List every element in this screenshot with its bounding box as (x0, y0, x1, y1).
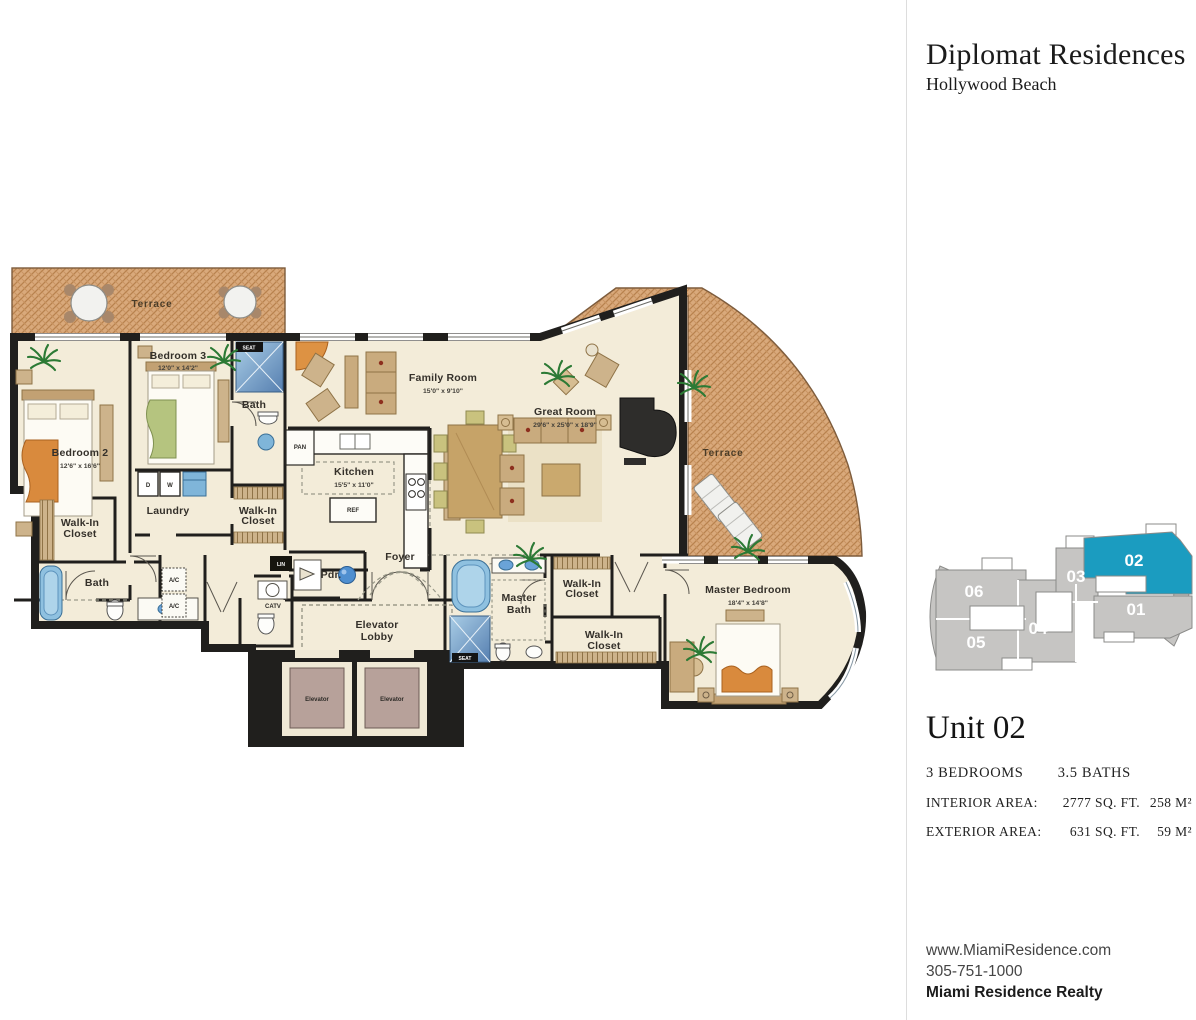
terrace-top: Terrace (12, 268, 285, 337)
exterior-area-label: EXTERIOR AREA: (926, 824, 1044, 840)
great-room-dims: 29'6" x 25'0" x 18'9" (533, 422, 597, 429)
floorplan-sheet: Terrace Terrace (0, 0, 1196, 1020)
terrace-right-label: Terrace (703, 448, 744, 459)
bath2-label: Bath (85, 577, 109, 589)
wic-m2-label2: Closet (587, 640, 621, 652)
ac2-label: A/C (169, 604, 180, 610)
lobby-label2: Lobby (361, 631, 394, 643)
building-subtitle: Hollywood Beach (926, 74, 1186, 95)
keyplan-tab (1104, 632, 1134, 642)
elevator1-label: Elevator (305, 697, 329, 703)
interior-area-label: INTERIOR AREA: (926, 795, 1044, 811)
wic-m1-label2: Closet (565, 588, 599, 600)
laundry-label: Laundry (147, 505, 190, 517)
realtor-footer: www.MiamiResidence.com 305-751-1000 Miam… (926, 940, 1111, 1003)
floorplan-drawing: Terrace Terrace (0, 250, 900, 770)
wic-bed3-label2: Closet (241, 515, 275, 527)
keyplan-label-02: 02 (1125, 551, 1144, 570)
wic-m1-rods (554, 557, 610, 569)
keyplan-label-01: 01 (1127, 600, 1146, 619)
keyplan-tab (982, 558, 1012, 570)
bedroom2-dims: 12'6" x 16'6" (60, 463, 100, 470)
exterior-area-sqft: 631 SQ. FT. (1044, 824, 1140, 840)
laundry-appliances: D W (138, 472, 206, 496)
seat-tag: SEAT (243, 346, 256, 352)
master-seat-tag: SEAT (459, 656, 472, 662)
wic-bed2-rods (40, 500, 54, 560)
great-room-label: Great Room (534, 406, 596, 418)
exterior-area-m2: 59 M² (1140, 824, 1192, 840)
dryer-label: D (146, 483, 151, 489)
bedroom3-dims: 12'0" x 14'2" (158, 365, 198, 372)
catv-label: CATV (265, 604, 281, 610)
interior-area-row: INTERIOR AREA: 2777 SQ. FT. 258 M² (926, 795, 1192, 811)
master-bedroom-label: Master Bedroom (705, 584, 791, 596)
master-bath-label1: Master (501, 592, 536, 604)
bath3-label: Bath (242, 399, 266, 411)
bedroom2-label: Bedroom 2 (52, 447, 109, 459)
bedroom3-label: Bedroom 3 (150, 350, 207, 362)
terrace-top-label: Terrace (132, 299, 173, 310)
wic-bed2-label2: Closet (63, 528, 97, 540)
linen-label: LIN (277, 562, 285, 568)
washer-label: W (167, 483, 173, 489)
baths-count: 3.5 BATHS (1058, 765, 1131, 781)
company-name: Miami Residence Realty (926, 982, 1111, 1003)
keyplan-core-cutout (1096, 576, 1146, 592)
exterior-area-row: EXTERIOR AREA: 631 SQ. FT. 59 M² (926, 824, 1192, 840)
building-title: Diplomat Residences (926, 38, 1186, 72)
beds-baths-row: 3 BEDROOMS 3.5 BATHS (926, 765, 1192, 782)
interior-area-m2: 258 M² (1140, 795, 1192, 811)
wic-m2-rods (556, 652, 656, 663)
master-bedroom-dims: 18'4" x 14'8" (728, 600, 768, 607)
foyer-label: Foyer (385, 551, 415, 563)
kitchen-label: Kitchen (334, 466, 374, 478)
family-room-dims: 15'0" x 9'10" (423, 388, 463, 395)
keyplan-core-cutout (970, 606, 1024, 630)
pantry-label: PAN (294, 445, 306, 451)
fridge-label: REF (347, 508, 359, 514)
phone-number: 305-751-1000 (926, 961, 1111, 982)
master-bath-label2: Bath (507, 604, 531, 616)
brand-header: Diplomat Residences Hollywood Beach (926, 38, 1186, 95)
family-room-label: Family Room (409, 372, 477, 384)
keyplan-label-04: 04 (1029, 619, 1048, 638)
interior-area-sqft: 2777 SQ. FT. (1044, 795, 1140, 811)
elevator-core: Elevator Elevator (252, 650, 458, 743)
pdr-label: Pdr. (321, 569, 342, 581)
website-url: www.MiamiResidence.com (926, 940, 1111, 961)
lobby-label1: Elevator (355, 619, 398, 631)
unit-info: Unit 02 3 BEDROOMS 3.5 BATHS INTERIOR AR… (926, 710, 1192, 840)
keyplan-label-06: 06 (965, 582, 984, 601)
keyplan-label-05: 05 (967, 633, 986, 652)
ac1-label: A/C (169, 578, 180, 584)
unit-title: Unit 02 (926, 710, 1192, 747)
keyplan-label-03: 03 (1067, 567, 1086, 586)
elevator2-label: Elevator (380, 697, 404, 703)
panel-divider (906, 0, 907, 1020)
kitchen-dims: 15'5" x 11'0" (334, 482, 374, 489)
building-keyplan: 06 05 04 03 02 01 (918, 518, 1196, 680)
bedrooms-count: 3 BEDROOMS (926, 765, 1023, 781)
